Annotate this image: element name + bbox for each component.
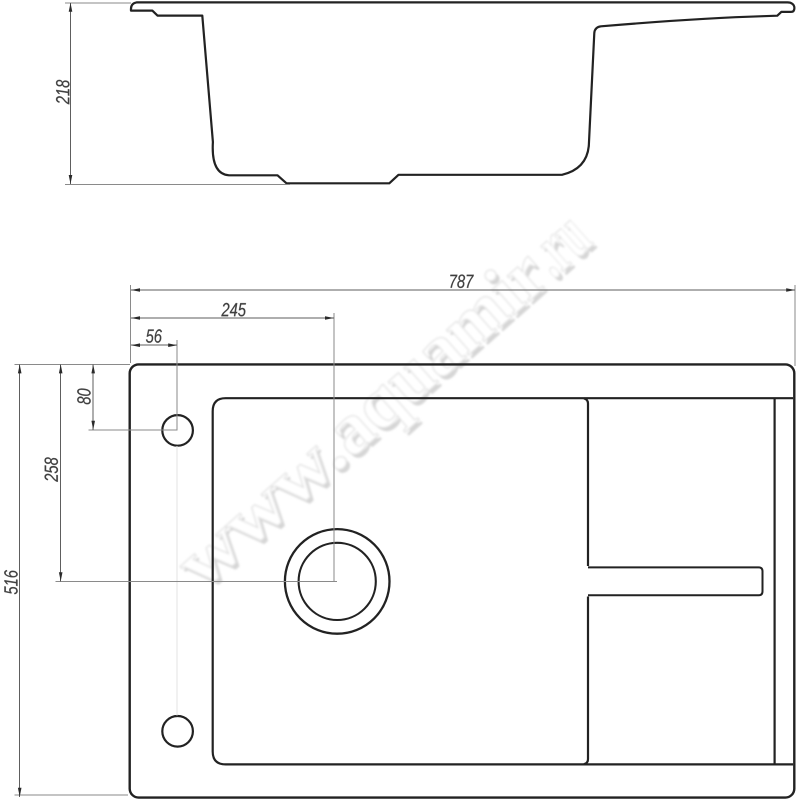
svg-text:aquamir: aquamir [309,232,563,471]
